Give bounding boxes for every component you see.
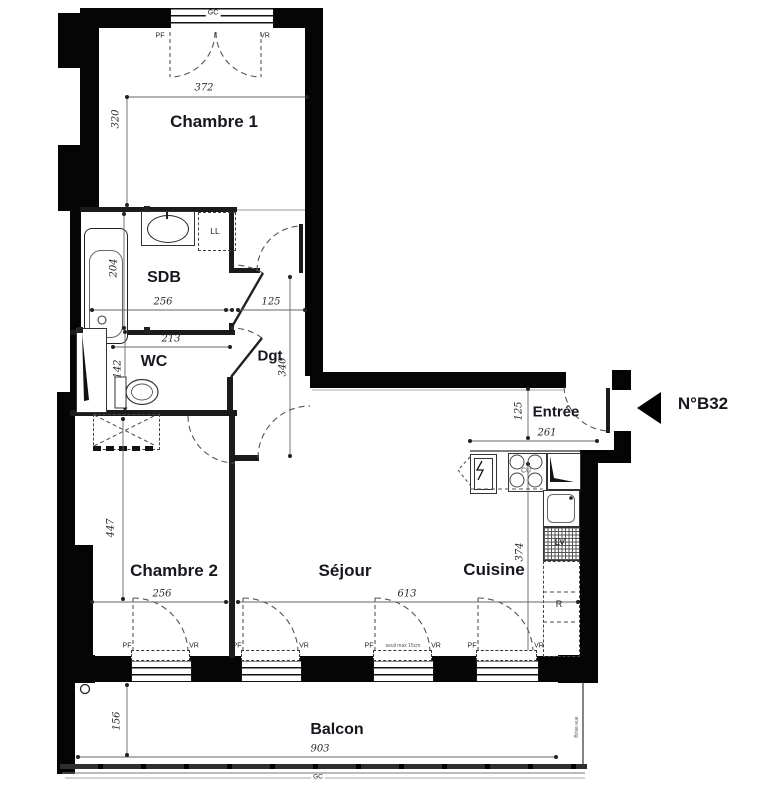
corner-unit-wedge [550,456,574,482]
dim-sdb-door: 125 [261,297,280,308]
dim-balcon-height: 156 [112,711,123,730]
dim-ch2-height: 447 [106,518,117,537]
tag-pf-4: PF [468,643,477,650]
room-label-entree: Entrée [533,404,580,421]
dim-ch1-height: 320 [111,109,122,128]
tag-pf-3: PF [365,643,374,650]
door-leaf-sdb [233,273,263,325]
door-arc-wc [231,328,262,338]
tag-vr-4: VR [534,643,544,650]
dim-dgt-height: 340 [278,357,289,376]
tag-gc-top: GC [206,10,221,17]
tag-fridge: R [556,599,563,609]
window-arc-ch1-left [170,32,215,77]
tag-vr-3: VR [431,643,441,650]
floor-plan: Chambre 1 SDB WC Dgt Entrée Chambre 2 Sé… [0,0,767,800]
toilet-tank [115,377,126,408]
tag-dishwasher: LV [555,537,565,547]
lightning-icon [477,461,483,480]
dim-cuisine-height: 374 [515,542,526,561]
room-label-balcon: Balcon [310,721,363,739]
room-label-chambre2: Chambre 2 [130,561,218,581]
duct-wedge [82,333,89,401]
window-arc-2 [243,598,298,653]
bathtub-drain [98,316,106,324]
burner-4 [528,473,542,487]
room-label-chambre1: Chambre 1 [170,112,258,132]
kitchen-faucet [569,496,573,500]
dim-wc-height: 142 [113,359,124,378]
tag-pf-2: PF [233,643,242,650]
room-label-sejour: Séjour [319,561,372,581]
window-arc-4 [478,598,533,653]
balcony-drain [81,685,90,694]
dim-ch2-width: 256 [152,589,171,600]
room-label-sdb: SDB [147,269,181,287]
door-arc-sdb [233,265,263,273]
tag-vr-1: VR [189,643,199,650]
window-arc-1 [133,598,188,653]
room-label-cuisine: Cuisine [463,560,524,580]
tag-hob: CU [521,468,531,475]
dim-sejour-width: 613 [397,589,416,600]
window-sill-1 [131,650,190,661]
tag-pf-1: PF [123,643,132,650]
dim-sdb-width: 256 [153,297,172,308]
window-sill-4 [476,650,537,661]
door-arc-sejour [258,406,310,458]
dim-wc-width: 213 [161,334,180,345]
door-arc-chambre2 [188,416,235,463]
unit-arrow-icon [637,392,661,424]
tag-pf-top: PF [156,33,165,40]
dim-balcon-width: 903 [310,744,329,755]
tag-washing-machine: LL [210,226,219,236]
dimension-lines [62,97,597,778]
door-arc-chambre1 [257,226,302,271]
tag-brise-vue: Brise-vue [574,716,580,737]
dim-ch1-width: 372 [194,83,213,94]
tag-vr-top: VR [260,33,270,40]
dim-entree-width: 261 [537,428,556,439]
unit-label: N°B32 [678,394,728,414]
burner-3 [510,473,524,487]
dim-sdb-depth: 204 [109,258,120,277]
tag-seuil: seuil max 15cm [386,643,421,649]
window-sill-3 [373,650,432,661]
dim-entree-height: 125 [514,401,525,420]
window-sill-2 [241,650,300,661]
tag-vr-2: VR [299,643,309,650]
tag-gc-bottom: GC [311,774,325,781]
room-label-wc: WC [141,353,168,371]
toilet-bowl [126,380,158,405]
window-arc-ch1-right [216,32,261,77]
